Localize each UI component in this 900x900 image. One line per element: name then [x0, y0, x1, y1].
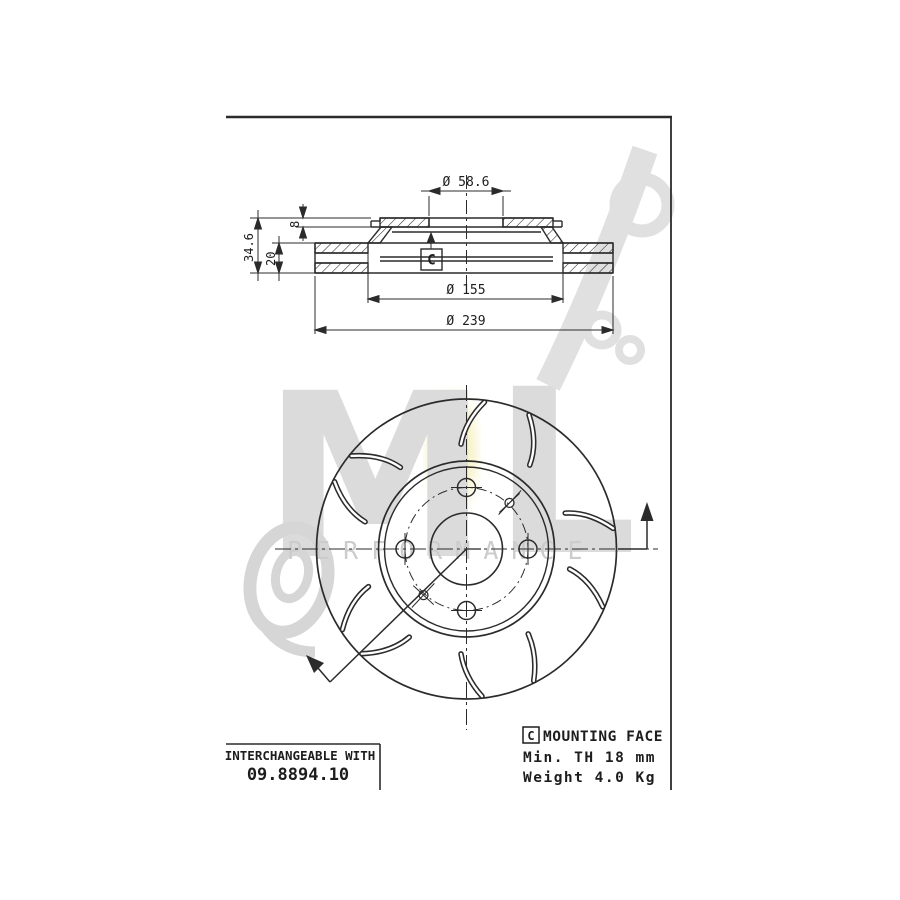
section-hat-flange-left [380, 218, 429, 227]
section-hat-flange-right [503, 218, 553, 227]
arrow-up-icon [641, 502, 654, 521]
dim-hat-label: Ø 155 [446, 283, 485, 298]
weight-note: Weight 4.0 Kg [523, 770, 656, 786]
brake-disc-technical-drawing: M L PERFORMANCE [0, 0, 900, 900]
mounting-face-marker: C [427, 253, 435, 269]
watermark-letter-m: M [262, 344, 489, 610]
disc-slot [461, 654, 482, 696]
watermark: M L PERFORMANCE [239, 150, 668, 652]
mounting-face-note: MOUNTING FACE [543, 729, 663, 745]
section-hat-wall-right [541, 227, 563, 243]
interchangeable-box: INTERCHANGEABLE WITH 09.8894.10 [225, 744, 380, 790]
watermark-slogan: PERFORMANCE [287, 536, 596, 565]
section-hat-wall-left [368, 227, 392, 243]
part-number: 09.8894.10 [247, 765, 349, 785]
dim-height-label: 34.6 [242, 233, 256, 262]
disc-slot [362, 637, 410, 654]
dim-bore-label: Ø 58.6 [443, 175, 490, 190]
dim-thickness-label: 20 [264, 252, 278, 266]
note-marker: C [527, 729, 534, 743]
dim-outer-label: Ø 239 [446, 314, 485, 329]
spec-notes: C MOUNTING FACE Min. TH 18 mm Weight 4.0… [523, 727, 663, 786]
dim-flange-label: 8 [288, 221, 302, 228]
min-thickness-note: Min. TH 18 mm [523, 750, 656, 766]
interchangeable-label: INTERCHANGEABLE WITH [225, 748, 376, 763]
arrow-up-left-icon [306, 655, 324, 673]
drawing-canvas: M L PERFORMANCE [0, 0, 900, 900]
